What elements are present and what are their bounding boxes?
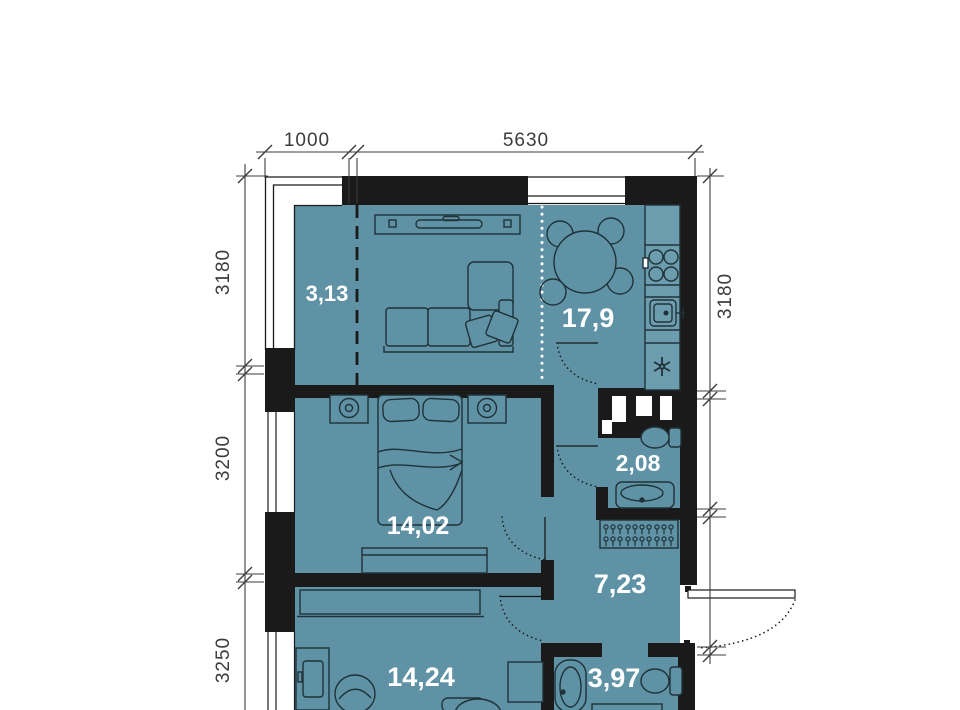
- room-label-bedroom: 14,02: [387, 512, 450, 540]
- office-chair-icon: [335, 675, 375, 710]
- entrance-door: [688, 590, 795, 648]
- room-label-bathroom-guest: 2,08: [616, 450, 661, 476]
- nightstand-lamp-icon: [468, 395, 506, 423]
- door-hinge-bottom: [684, 640, 690, 646]
- window-top: [528, 176, 625, 205]
- room-label-balcony: 3,13: [306, 281, 349, 306]
- room-label-room-second: 14,24: [387, 662, 455, 692]
- toilet-icon: [641, 667, 682, 695]
- door-leaf: [688, 590, 795, 598]
- nightstand-lamp-icon: [330, 395, 368, 423]
- bed-icon: [378, 395, 462, 525]
- room-label-hallway: 7,23: [594, 569, 647, 599]
- wall-bedroom-room2: [295, 573, 545, 587]
- toilet-icon: [641, 427, 681, 448]
- window-room2: [265, 632, 295, 710]
- floor-plan-canvas: 1000 5630 3180 3200 3250 3180 3,13 17,9 …: [0, 0, 960, 710]
- room-label-kitchen-living: 17,9: [562, 303, 615, 333]
- wall-bathroom-bottom: [596, 508, 680, 520]
- dimension-right-3180: 3180: [715, 273, 736, 319]
- pedestal-sink-icon: [555, 660, 586, 710]
- dimension-left-3180: 3180: [213, 249, 234, 295]
- dimension-top-5630: 5630: [503, 130, 549, 151]
- room-label-bathroom-main: 3,97: [588, 663, 641, 693]
- floor-plan: 1000 5630 3180 3200 3250 3180 3,13 17,9 …: [0, 0, 960, 710]
- washing-machine-icon: [508, 662, 543, 702]
- dresser-icon: [362, 548, 487, 573]
- wardrobe-icon: [297, 590, 484, 617]
- wall-bathroom2-top-right: [648, 643, 680, 657]
- wall-left-pier-1: [265, 348, 295, 412]
- door-swing-icon: [700, 600, 795, 648]
- wall-left-pier-2: [265, 512, 295, 632]
- wall-top: [342, 176, 697, 205]
- dimension-left-3200: 3200: [213, 435, 234, 481]
- wall-right-upper: [680, 176, 697, 585]
- dimension-top-1000: 1000: [284, 130, 330, 151]
- tv-console-icon: [375, 215, 520, 234]
- washbasin-icon: [616, 482, 674, 508]
- desk-icon: [296, 648, 329, 710]
- dimension-left-3250: 3250: [213, 637, 234, 683]
- wall-bedroom-hallway-upper: [541, 385, 554, 497]
- window-bedroom: [265, 412, 295, 512]
